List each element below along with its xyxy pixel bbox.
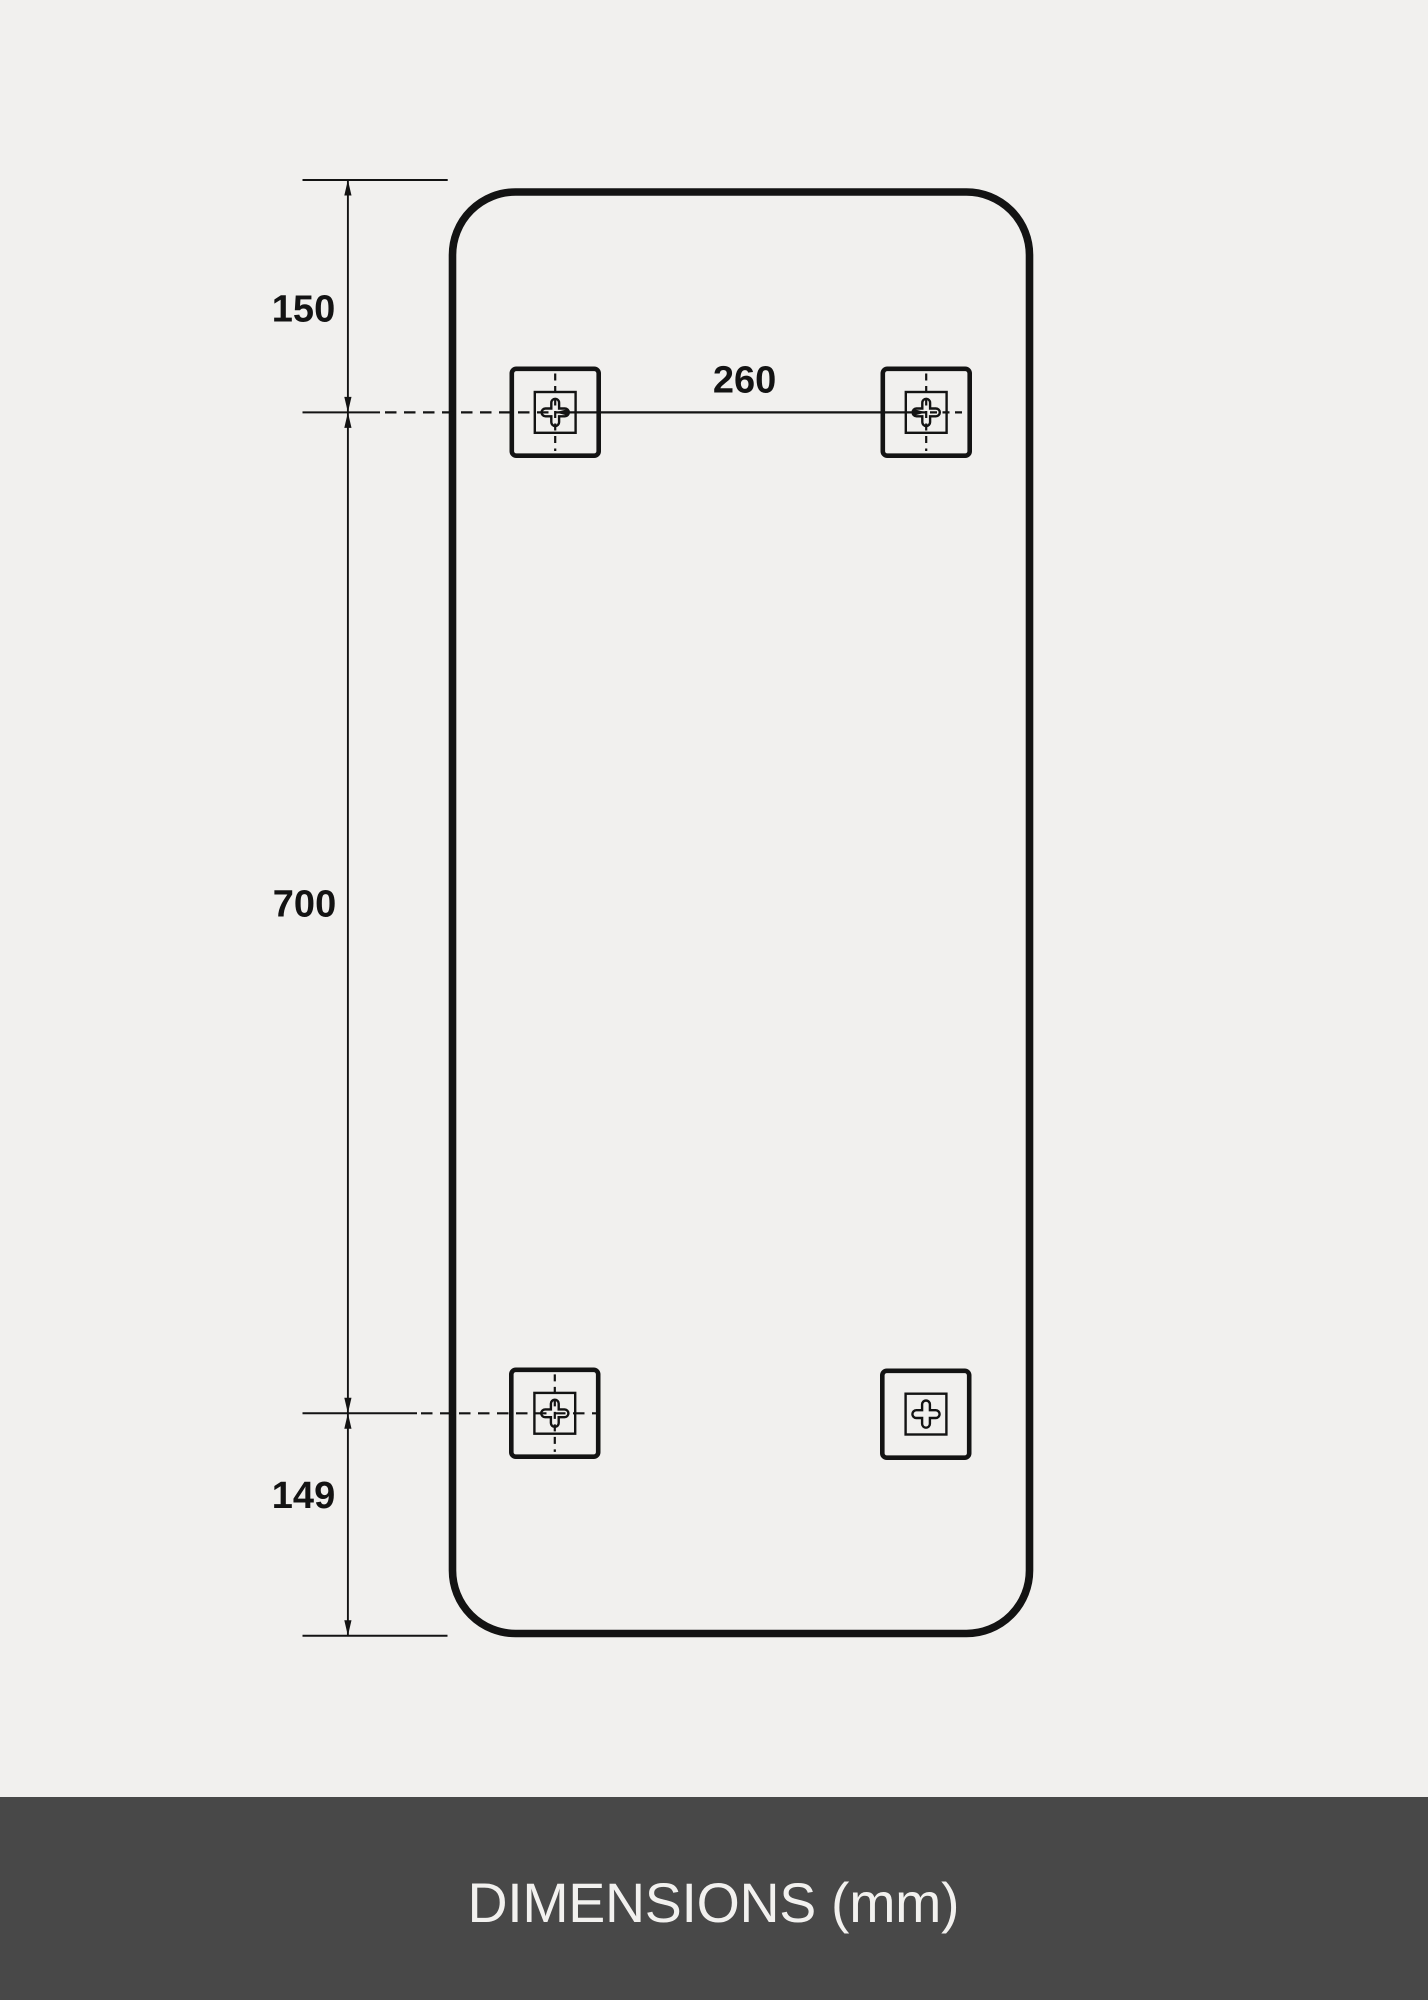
svg-text:150: 150 (272, 289, 335, 331)
svg-text:260: 260 (713, 360, 776, 402)
svg-text:149: 149 (272, 1475, 335, 1517)
svg-text:DIMENSIONS (mm): DIMENSIONS (mm) (468, 1872, 960, 1934)
svg-text:700: 700 (273, 883, 336, 925)
